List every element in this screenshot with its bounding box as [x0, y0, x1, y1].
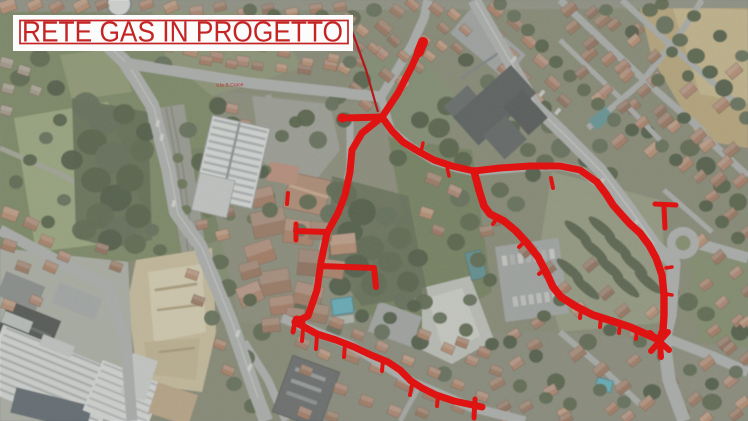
svg-text:RETE GAS IN PROGETTO: RETE GAS IN PROGETTO — [22, 17, 343, 49]
svg-text:V.le B.Croce: V.le B.Croce — [216, 82, 244, 89]
